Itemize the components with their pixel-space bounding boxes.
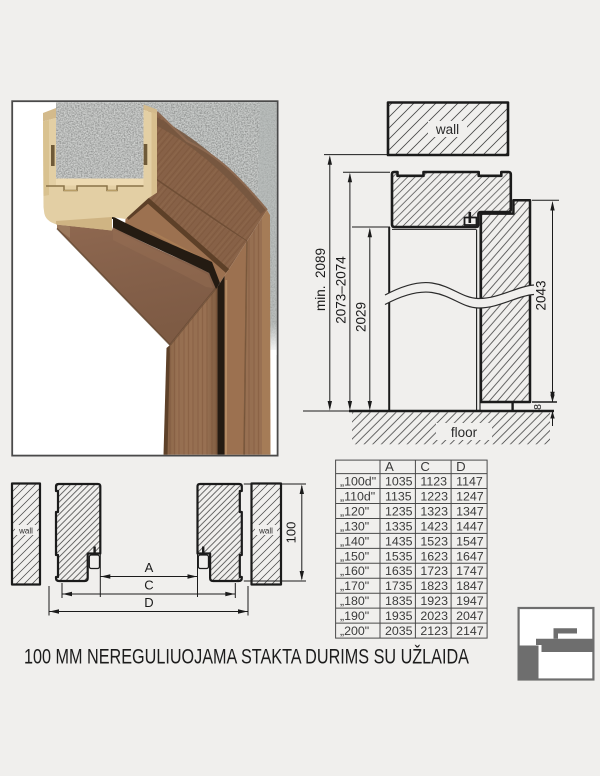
svg-text:1447: 1447: [456, 519, 484, 533]
svg-text:100: 100: [284, 522, 299, 544]
svg-text:„130": „130": [340, 519, 369, 533]
svg-text:1523: 1523: [420, 534, 448, 548]
svg-text:2035: 2035: [385, 624, 413, 638]
svg-text:1923: 1923: [420, 594, 448, 608]
svg-text:1323: 1323: [420, 504, 448, 518]
svg-text:2147: 2147: [456, 624, 484, 638]
svg-text:1735: 1735: [385, 579, 413, 593]
svg-text:2123: 2123: [420, 624, 448, 638]
svg-text:1935: 1935: [385, 609, 413, 623]
svg-text:„200": „200": [340, 624, 369, 638]
svg-text:wall: wall: [18, 527, 33, 536]
svg-text:C: C: [420, 459, 430, 474]
svg-text:„160": „160": [340, 564, 369, 578]
svg-text:1835: 1835: [385, 594, 413, 608]
svg-text:1847: 1847: [456, 579, 484, 593]
svg-text:1247: 1247: [456, 490, 484, 504]
svg-text:1147: 1147: [456, 475, 483, 489]
svg-text:8: 8: [532, 404, 544, 410]
svg-text:wall: wall: [258, 527, 273, 536]
svg-text:1623: 1623: [420, 549, 448, 563]
svg-text:1635: 1635: [385, 564, 413, 578]
svg-text:1823: 1823: [420, 579, 448, 593]
svg-text:1723: 1723: [420, 564, 448, 578]
svg-text:1947: 1947: [456, 594, 484, 608]
svg-text:A: A: [145, 560, 154, 575]
svg-text:C: C: [144, 578, 153, 593]
svg-text:1223: 1223: [420, 490, 448, 504]
svg-text:1747: 1747: [456, 564, 484, 578]
svg-text:1035: 1035: [385, 475, 413, 489]
svg-text:„120": „120": [340, 504, 369, 518]
svg-text:2023: 2023: [420, 609, 448, 623]
svg-text:D: D: [456, 459, 466, 474]
svg-text:2029: 2029: [353, 302, 368, 332]
svg-text:1647: 1647: [456, 549, 484, 563]
svg-text:„190": „190": [340, 609, 369, 623]
svg-text:D: D: [144, 595, 153, 610]
svg-text:„180": „180": [340, 594, 369, 608]
svg-text:1123: 1123: [420, 475, 447, 489]
svg-text:„140": „140": [340, 534, 369, 548]
svg-text:100 MM NEREGULIUOJAMA STAKTA D: 100 MM NEREGULIUOJAMA STAKTA DURIMS SU U…: [24, 646, 469, 669]
svg-text:1547: 1547: [456, 534, 484, 548]
svg-text:2043: 2043: [534, 280, 549, 310]
svg-text:2073–2074: 2073–2074: [334, 256, 349, 324]
svg-text:„150": „150": [340, 549, 369, 563]
svg-text:wall: wall: [435, 122, 459, 137]
svg-text:floor: floor: [451, 425, 478, 440]
svg-text:1135: 1135: [385, 490, 412, 504]
svg-text:1235: 1235: [385, 504, 413, 518]
svg-text:min. 2089: min. 2089: [313, 248, 328, 311]
svg-text:1435: 1435: [385, 534, 413, 548]
svg-text:1335: 1335: [385, 519, 413, 533]
svg-text:„110d": „110d": [340, 490, 375, 504]
svg-text:A: A: [385, 459, 394, 474]
svg-text:„100d": „100d": [340, 475, 376, 489]
svg-text:1347: 1347: [456, 504, 484, 518]
svg-text:„170": „170": [340, 579, 369, 593]
svg-text:1423: 1423: [420, 519, 448, 533]
svg-text:1535: 1535: [385, 549, 413, 563]
svg-text:2047: 2047: [456, 609, 484, 623]
